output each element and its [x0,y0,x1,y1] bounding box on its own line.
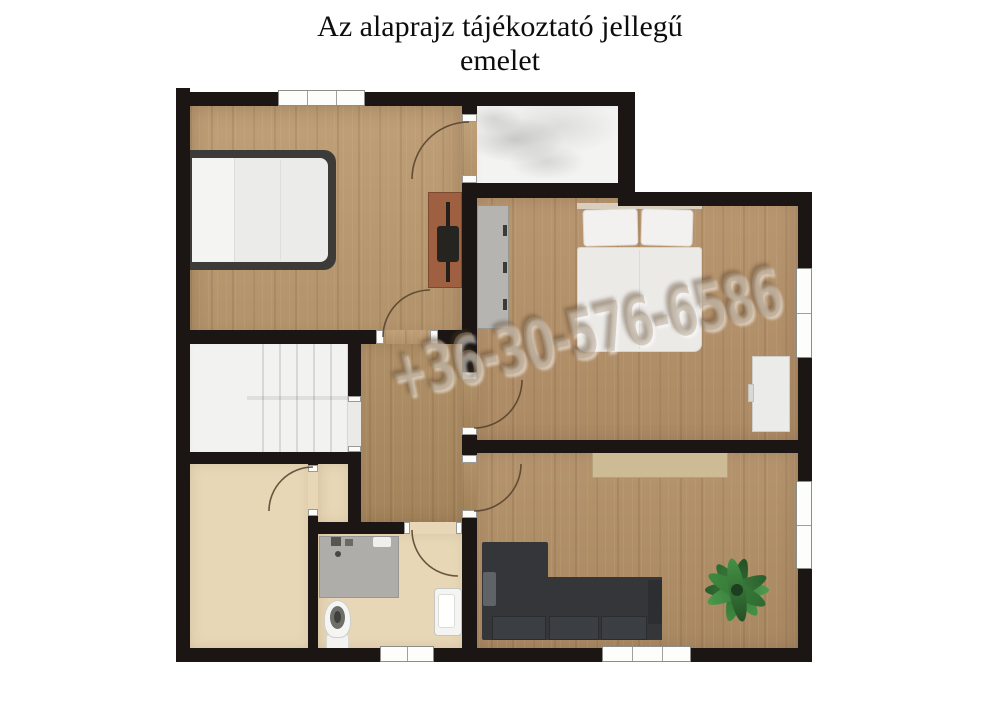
window-mullion [632,647,633,661]
door-gap-bathroom [410,522,456,534]
door-jamb [462,510,477,518]
sideboard [592,450,728,478]
bed-left-duvet-fold [280,160,281,260]
sofa-cushion-2 [549,616,599,640]
sink-basin [438,594,455,628]
dresser-handle [748,384,754,402]
wall-outer-right [798,192,812,662]
window-mullion [797,525,811,526]
door-jamb [462,455,477,463]
door-jamb [456,522,462,534]
window-mullion [407,647,408,661]
window-right-bedroom [796,268,812,358]
dresser [752,356,790,432]
wall-bedroom-right-top [618,192,812,206]
window-bottom-living [602,646,691,662]
door-jamb [308,509,318,516]
door-jamb [348,446,361,452]
vanity-faucet [331,537,341,546]
window-mullion [797,313,811,314]
sofa-armrest-left [483,572,496,606]
door-jamb [404,522,410,534]
door-gap-stairs [348,402,361,446]
plan-title-line2: emelet [0,44,1000,78]
plant-center [731,584,743,596]
door-gap-closet [308,472,318,509]
vanity-soapdish [373,537,391,547]
window-top-bedroom-left [278,90,365,106]
window-bottom-bathroom [380,646,434,662]
wall-stairs-bottom [176,452,361,464]
wall-outer-bottom [176,648,812,662]
door-jamb [348,396,361,402]
door-jamb [462,114,477,122]
stairs-shadow-line [247,396,351,400]
plan-title: Az alaprajz tájékoztató jellegű emelet [0,10,1000,78]
sofa-armrest-right [648,580,662,624]
window-mullion [336,91,337,105]
sofa-cushion-3 [601,616,647,640]
bed-left-pillow [192,158,235,262]
wardrobe-handle-1 [503,225,507,236]
plan-title-line1: Az alaprajz tájékoztató jellegű [0,10,1000,44]
sofa-cushion-1 [492,616,546,640]
floor-terrace-room [470,100,630,195]
door-gap-terrace [462,122,477,175]
wardrobe-handle-2 [503,262,507,273]
vanity-handle [345,539,353,546]
toilet-seat-center [334,611,341,623]
wall-terrace-bottom [462,183,622,198]
floorplan-image: Az alaprajz tájékoztató jellegű emelet [0,0,1000,704]
bed-right-pillow-left [583,208,639,246]
wall-stairs-right-upper [348,338,361,398]
door-gap-living [462,463,477,510]
plant [699,552,775,628]
wall-living-bedroom-divider [462,440,812,453]
floor-room-beige [185,458,315,653]
desk-chair [437,226,459,262]
vanity-drain [335,551,341,557]
bed-right-pillow-right [641,208,694,246]
door-jamb [462,427,477,435]
wall-outer-left [176,88,190,662]
window-right-living [796,481,812,569]
window-mullion [662,647,663,661]
wall-bathroom-top [308,522,410,534]
door-jamb [462,175,477,183]
door-jamb [308,465,318,472]
window-mullion [307,91,308,105]
wardrobe-handle-3 [503,299,507,310]
wall-outer-top [176,92,635,106]
